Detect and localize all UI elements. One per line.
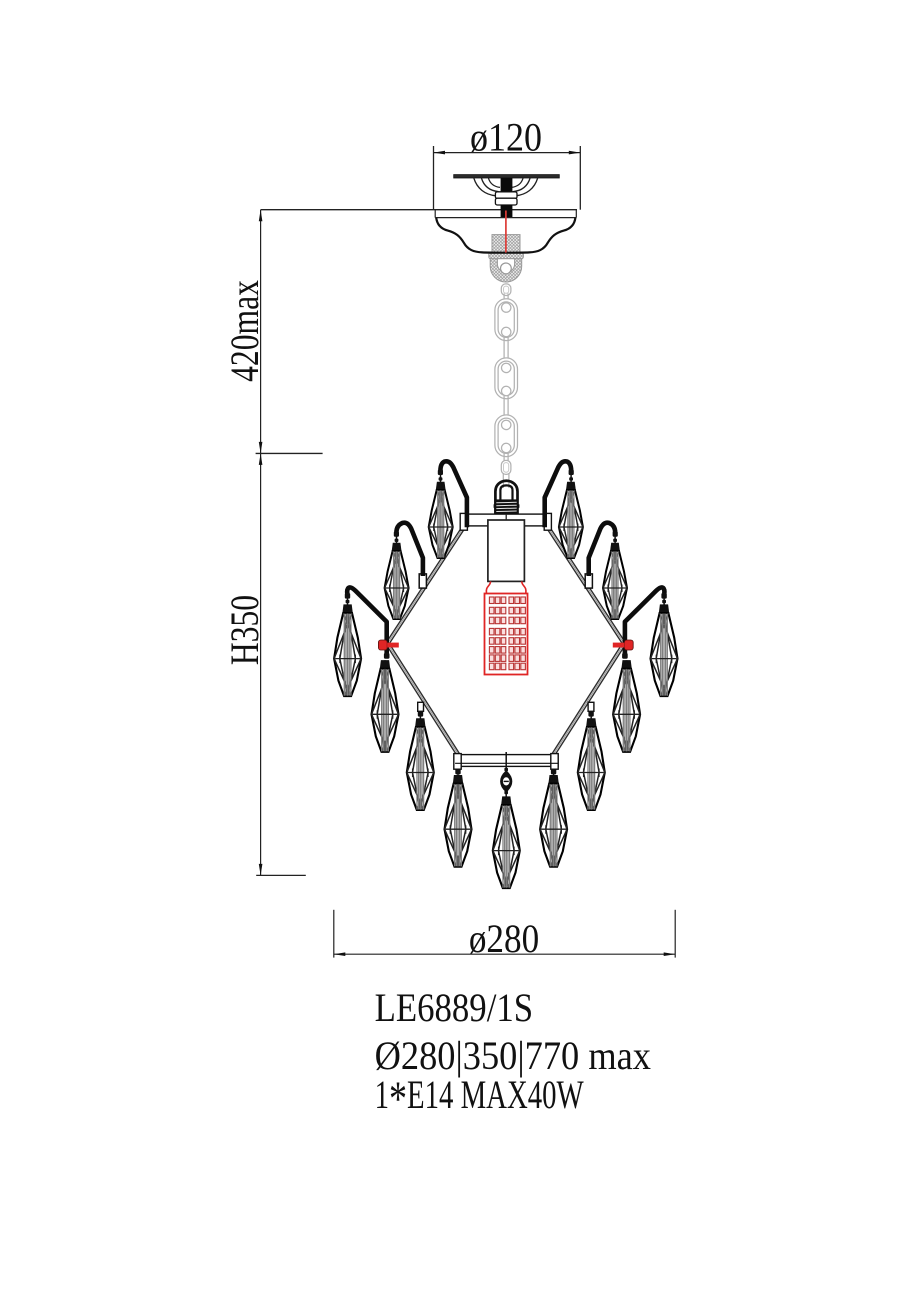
svg-text:420max: 420max (222, 280, 266, 382)
svg-text:ø280: ø280 (469, 917, 539, 962)
svg-text:ø120: ø120 (470, 116, 542, 160)
svg-text:LE6889/1S: LE6889/1S (375, 987, 534, 1031)
svg-text:H350: H350 (222, 595, 266, 665)
